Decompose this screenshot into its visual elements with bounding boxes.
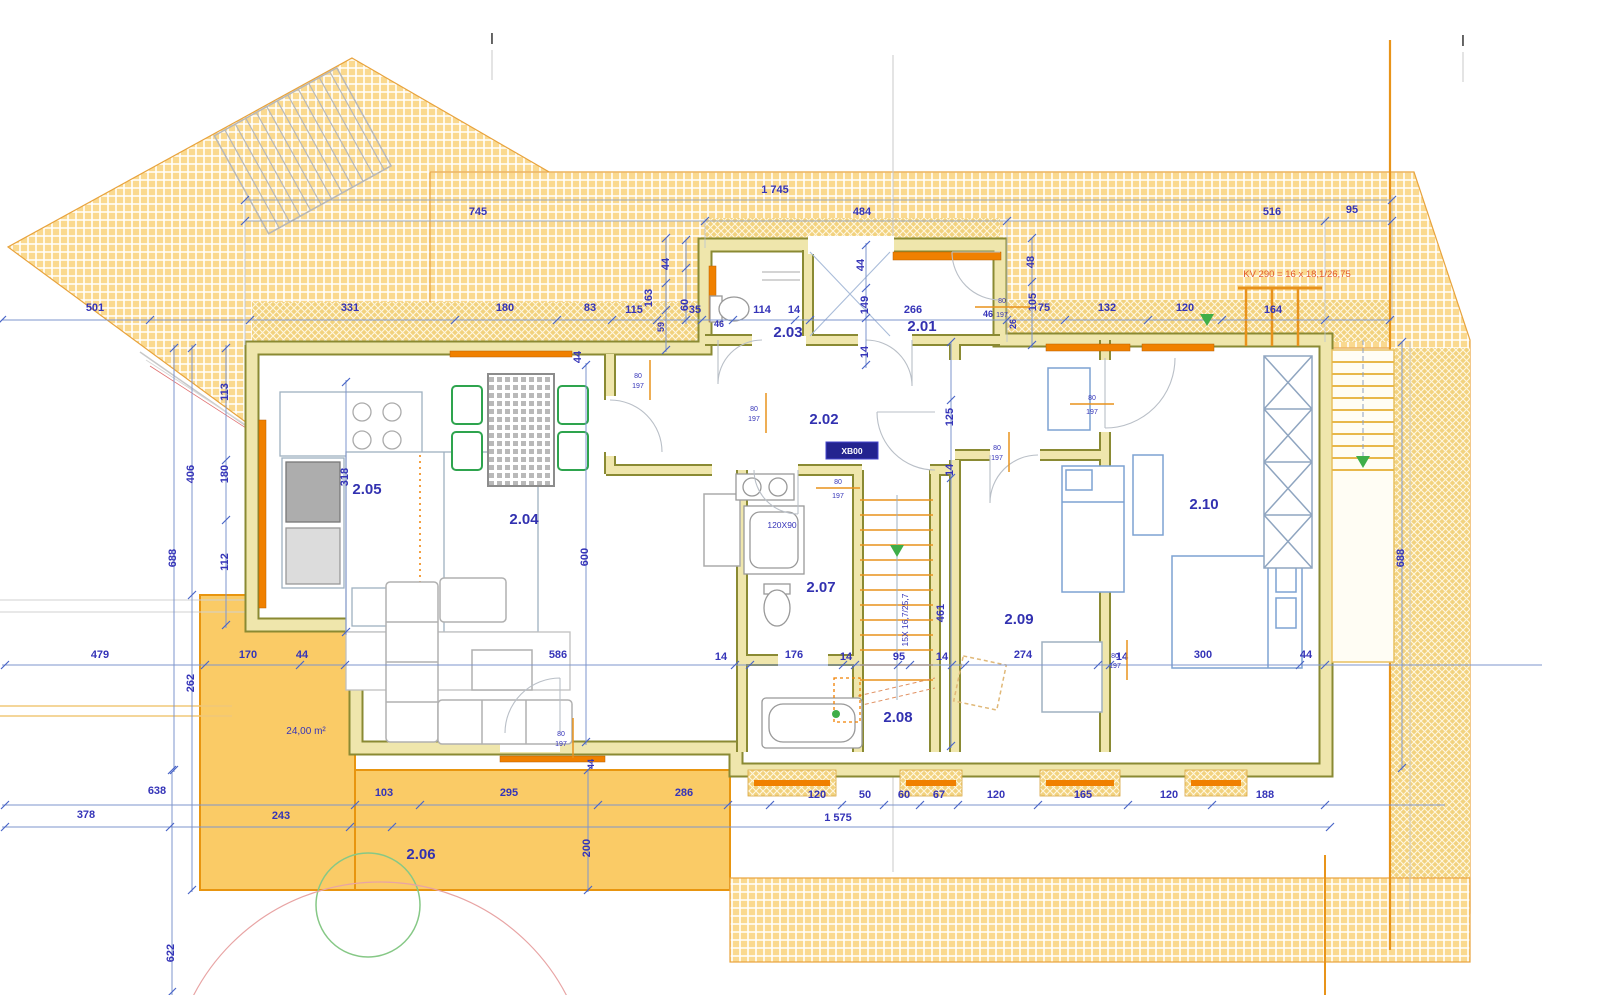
floor-plan-drawing: I I 1 745 745 484 516 95 501 331 180 83 … bbox=[0, 0, 1600, 995]
dim-label: 60 bbox=[898, 789, 910, 801]
room-label: 2.01 bbox=[907, 318, 936, 335]
dim-label: 331 bbox=[341, 302, 359, 314]
dim-label: 115 bbox=[625, 304, 643, 316]
dim-label: 14 bbox=[788, 304, 801, 316]
room-label: 2.06 bbox=[406, 846, 435, 863]
dim-label: 286 bbox=[675, 787, 693, 799]
dim-label: 1 575 bbox=[824, 812, 852, 824]
dim-label: 484 bbox=[853, 206, 872, 218]
dim-label: 295 bbox=[500, 787, 518, 799]
dim-label: 406 bbox=[185, 465, 197, 483]
dim-label: 14 bbox=[944, 463, 956, 476]
dim-label: 745 bbox=[469, 206, 487, 218]
door-width-label: 80 bbox=[634, 373, 642, 380]
chair bbox=[558, 432, 588, 470]
dim-label: 176 bbox=[785, 649, 803, 661]
door-width-label: 80 bbox=[834, 479, 842, 486]
dim-label: 479 bbox=[91, 649, 109, 661]
dim-label: 688 bbox=[167, 549, 179, 567]
room-label: 2.03 bbox=[773, 324, 802, 341]
stair-formula-note: KV 290 = 16 x 18,1/26,75 bbox=[1243, 269, 1351, 280]
dim-label: 14 bbox=[715, 651, 728, 663]
dim-label: 75 bbox=[1038, 302, 1050, 314]
dim-label: 14 bbox=[840, 651, 853, 663]
door-width-label: 80 bbox=[750, 406, 758, 413]
dim-label: 180 bbox=[219, 465, 231, 483]
arc-symbol bbox=[170, 882, 590, 995]
dim-label: 163 bbox=[643, 289, 655, 307]
door-height-label: 197 bbox=[632, 383, 644, 390]
dim-label: 378 bbox=[77, 809, 95, 821]
dim-label: 44 bbox=[586, 759, 596, 769]
dim-label: 112 bbox=[219, 553, 231, 571]
dim-label: 48 bbox=[1025, 256, 1037, 268]
dim-label: 44 bbox=[572, 350, 584, 363]
dim-label: 638 bbox=[148, 785, 166, 797]
door-height-label: 197 bbox=[991, 455, 1003, 462]
dining-table bbox=[488, 374, 554, 486]
shower-size-label: 120X90 bbox=[767, 520, 797, 530]
dim-label: 243 bbox=[272, 810, 290, 822]
dim-label: 300 bbox=[1194, 649, 1212, 661]
door-width-label: 80 bbox=[1088, 395, 1096, 402]
section-marker: I bbox=[490, 31, 494, 48]
floor-plan-canvas: I I 1 745 745 484 516 95 501 331 180 83 … bbox=[0, 0, 1600, 995]
door-height-label: 197 bbox=[748, 416, 760, 423]
exterior-staircase-right bbox=[1332, 340, 1394, 662]
dim-label: 105 bbox=[1027, 293, 1039, 311]
dim-label: 132 bbox=[1098, 302, 1116, 314]
dim-label: 266 bbox=[904, 304, 922, 316]
chair bbox=[452, 432, 482, 470]
dim-label: 44 bbox=[296, 649, 309, 661]
room-stamp: XB00 bbox=[826, 442, 878, 459]
door-width-label: 80 bbox=[557, 731, 565, 738]
shower bbox=[744, 506, 804, 574]
dim-label: 114 bbox=[753, 304, 772, 316]
dim-label: 120 bbox=[987, 789, 1005, 801]
room-label: 2.02 bbox=[809, 411, 838, 428]
dim-label: 120 bbox=[1160, 789, 1178, 801]
room-label: 2.10 bbox=[1189, 496, 1218, 513]
stair-steps-label: 15X 16,7/25,7 bbox=[900, 593, 910, 646]
wc-toilet bbox=[719, 297, 749, 321]
dim-label: 50 bbox=[859, 789, 871, 801]
dim-label: 188 bbox=[1256, 789, 1274, 801]
dim-label: 164 bbox=[1264, 304, 1283, 316]
area-label: 24,00 m² bbox=[286, 726, 326, 737]
door-height-label: 197 bbox=[555, 741, 567, 748]
section-marker: I bbox=[1461, 33, 1465, 50]
dim-label: 120 bbox=[808, 789, 826, 801]
dim-label: 46 bbox=[983, 309, 993, 319]
double-washbasin bbox=[736, 474, 794, 500]
door-height-label: 197 bbox=[1086, 409, 1098, 416]
dim-label: 26 bbox=[1008, 319, 1018, 329]
room-label: 2.08 bbox=[883, 709, 912, 726]
dim-label: 95 bbox=[1346, 204, 1358, 216]
toilet bbox=[764, 590, 790, 626]
dim-label: 46 bbox=[714, 319, 724, 329]
dim-label: 622 bbox=[165, 944, 177, 962]
dim-label: 95 bbox=[893, 651, 905, 663]
door-height-label: 197 bbox=[996, 312, 1008, 319]
dim-label: 14 bbox=[859, 345, 871, 358]
dim-label: 59 bbox=[656, 322, 666, 332]
wardrobe bbox=[1264, 356, 1312, 568]
room-label: 2.04 bbox=[509, 511, 539, 528]
dim-label: 501 bbox=[86, 302, 104, 314]
dim-label: 67 bbox=[933, 789, 945, 801]
dim-label: 170 bbox=[239, 649, 257, 661]
dim-label: 688 bbox=[1395, 549, 1407, 567]
room-label: 2.09 bbox=[1004, 611, 1033, 628]
door-opening bbox=[808, 236, 894, 254]
dim-label: 274 bbox=[1014, 649, 1033, 661]
dim-label: 83 bbox=[584, 302, 596, 314]
dim-label: 113 bbox=[219, 383, 231, 401]
dim-label: 318 bbox=[339, 468, 351, 486]
dim-label: 516 bbox=[1263, 206, 1281, 218]
dim-label: 103 bbox=[375, 787, 393, 799]
dim-label: 44 bbox=[855, 258, 867, 271]
dim-label: 44 bbox=[1300, 649, 1313, 661]
door-height-label: 197 bbox=[1109, 663, 1121, 670]
chair bbox=[452, 386, 482, 424]
door-height-label: 197 bbox=[832, 493, 844, 500]
dim-label: 125 bbox=[944, 408, 956, 426]
dim-label: 600 bbox=[579, 548, 591, 566]
dim-label: 60 bbox=[679, 299, 691, 311]
dim-label: 149 bbox=[859, 296, 871, 314]
dim-label: 120 bbox=[1176, 302, 1194, 314]
dim-label: 14 bbox=[936, 651, 949, 663]
dim-label: 461 bbox=[935, 604, 947, 622]
dim-label: 262 bbox=[185, 674, 197, 692]
door-opening bbox=[606, 396, 619, 456]
door-width-label: 80 bbox=[1111, 653, 1119, 660]
door-width-label: 80 bbox=[993, 445, 1001, 452]
dim-label: 180 bbox=[496, 302, 514, 314]
dim-label: 165 bbox=[1074, 789, 1092, 801]
room-label: 2.05 bbox=[352, 481, 381, 498]
dim-label: 1 745 bbox=[761, 184, 789, 196]
room-label: 2.07 bbox=[806, 579, 835, 596]
dim-label: 586 bbox=[549, 649, 567, 661]
chair bbox=[558, 386, 588, 424]
dim-label: 200 bbox=[581, 839, 593, 857]
door-width-label: 80 bbox=[998, 298, 1006, 305]
stamp-text: XB00 bbox=[841, 446, 863, 456]
dim-label: 44 bbox=[660, 257, 672, 270]
